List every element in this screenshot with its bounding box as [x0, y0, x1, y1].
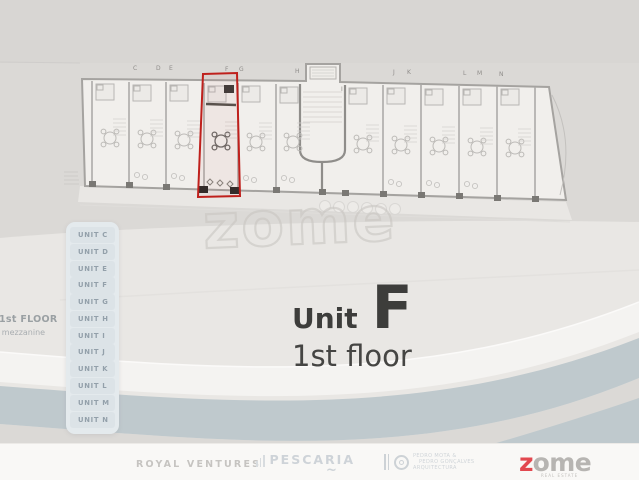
page: CDEFGHIJKLMN zome UNIT CUNIT DUNIT EUNIT… [0, 0, 639, 480]
sidebar-item-unit-g[interactable]: UNIT G [70, 294, 115, 310]
title-unit-word: Unit [292, 302, 358, 335]
plan-letter-g: G [239, 66, 244, 73]
plan-letter-e: E [169, 65, 173, 72]
plan-letter-h: H [295, 68, 300, 75]
zome-logo: z ome [519, 450, 591, 475]
zome-logo-z: z [519, 450, 533, 475]
highlight-unit-f[interactable] [198, 73, 240, 197]
plan-letter-j: J [392, 69, 395, 76]
plan-letter-d: D [156, 65, 161, 72]
floor-label-line1: 1st FLOOR [0, 314, 58, 325]
sidebar-item-unit-m[interactable]: UNIT M [70, 395, 115, 411]
sidebar-item-unit-n[interactable]: UNIT N [70, 412, 115, 428]
plan-letter-c: C [133, 65, 137, 72]
sidebar-item-unit-f[interactable]: UNIT F [70, 277, 115, 293]
architects-line3: ARQUITECTURA [413, 465, 474, 471]
sidebar-item-unit-h[interactable]: UNIT H [70, 311, 115, 327]
sidebar-item-unit-d[interactable]: UNIT D [70, 244, 115, 260]
plan-letter-k: K [407, 69, 412, 76]
sidebar-item-unit-k[interactable]: UNIT K [70, 361, 115, 377]
title-unit-letter: F [372, 283, 413, 334]
sidebar-item-unit-l[interactable]: UNIT L [70, 378, 115, 394]
pescaria-label: PESCARIA [270, 452, 356, 467]
footer-logo-strip: ROYAL VENTURES PESCARIA ~ PEDRO MOTA & P… [0, 443, 639, 480]
plan-letter-i: I [341, 86, 343, 93]
architects-bars-icon [384, 454, 391, 470]
unit-selector-panel: UNIT CUNIT DUNIT EUNIT FUNIT GUNIT HUNIT… [66, 222, 119, 434]
floor-label-line2: & mezzanine [0, 328, 58, 337]
sidebar-item-unit-e[interactable]: UNIT E [70, 261, 115, 277]
architects-ring-icon [394, 455, 409, 470]
floor-label: 1st FLOOR & mezzanine [0, 314, 58, 337]
plan-letter-l: L [463, 70, 467, 77]
sidebar-item-unit-c[interactable]: UNIT C [70, 227, 115, 243]
zome-logo-subtext: REAL ESTATE [541, 473, 578, 478]
plan-letter-m: M [477, 70, 482, 77]
plan-letter-n: N [499, 71, 504, 78]
architects-logo: PEDRO MOTA & PEDRO GONÇALVES ARQUITECTUR… [384, 453, 474, 471]
plan-letter-f: F [225, 66, 229, 73]
pescaria-tilde-icon: ~ [326, 463, 337, 478]
pescaria-bars-icon [256, 455, 267, 467]
architects-text: PEDRO MOTA & PEDRO GONÇALVES ARQUITECTUR… [413, 453, 474, 471]
zome-logo-rest: ome [533, 450, 592, 475]
sidebar-item-unit-i[interactable]: UNIT I [70, 328, 115, 344]
selection-title: Unit F 1st floor [292, 283, 413, 373]
pescaria-logo: PESCARIA [256, 452, 355, 467]
sidebar-item-unit-j[interactable]: UNIT J [70, 344, 115, 360]
royal-ventures-logo: ROYAL VENTURES [136, 459, 261, 470]
title-floor: 1st floor [292, 339, 413, 373]
site-top-band [0, 0, 639, 63]
